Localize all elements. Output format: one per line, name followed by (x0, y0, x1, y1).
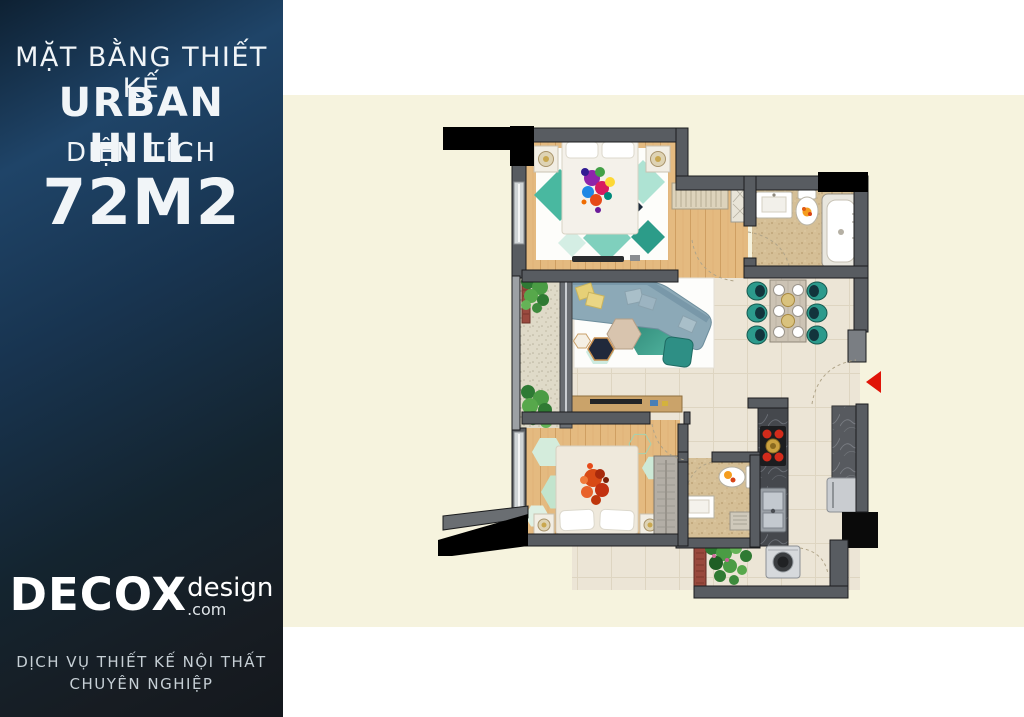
toilet1 (796, 190, 818, 225)
dining-area (747, 280, 827, 344)
candle-holder (782, 315, 795, 328)
fridge (827, 478, 859, 512)
floor-plan (0, 0, 1024, 717)
tv-living (590, 399, 642, 404)
pillow (559, 509, 594, 531)
wardrobe-bedroom2 (654, 456, 678, 538)
nightstand-right (646, 146, 670, 172)
tv-console (566, 396, 682, 412)
tv-master (572, 256, 624, 262)
washing-machine (766, 546, 800, 578)
pouf (662, 336, 694, 368)
candle-holder (782, 294, 795, 307)
kitchen-sink (760, 488, 786, 532)
master-bedroom (534, 140, 670, 262)
coffee-table-dark-hex (588, 338, 614, 360)
pillow (602, 142, 634, 158)
stove (760, 426, 786, 466)
nightstand-left2 (534, 514, 554, 536)
entrance-arrow-icon (866, 371, 881, 393)
nightstand-left (534, 146, 558, 172)
pillow (599, 509, 634, 531)
pillow (566, 142, 598, 158)
shower-drain (730, 512, 750, 530)
